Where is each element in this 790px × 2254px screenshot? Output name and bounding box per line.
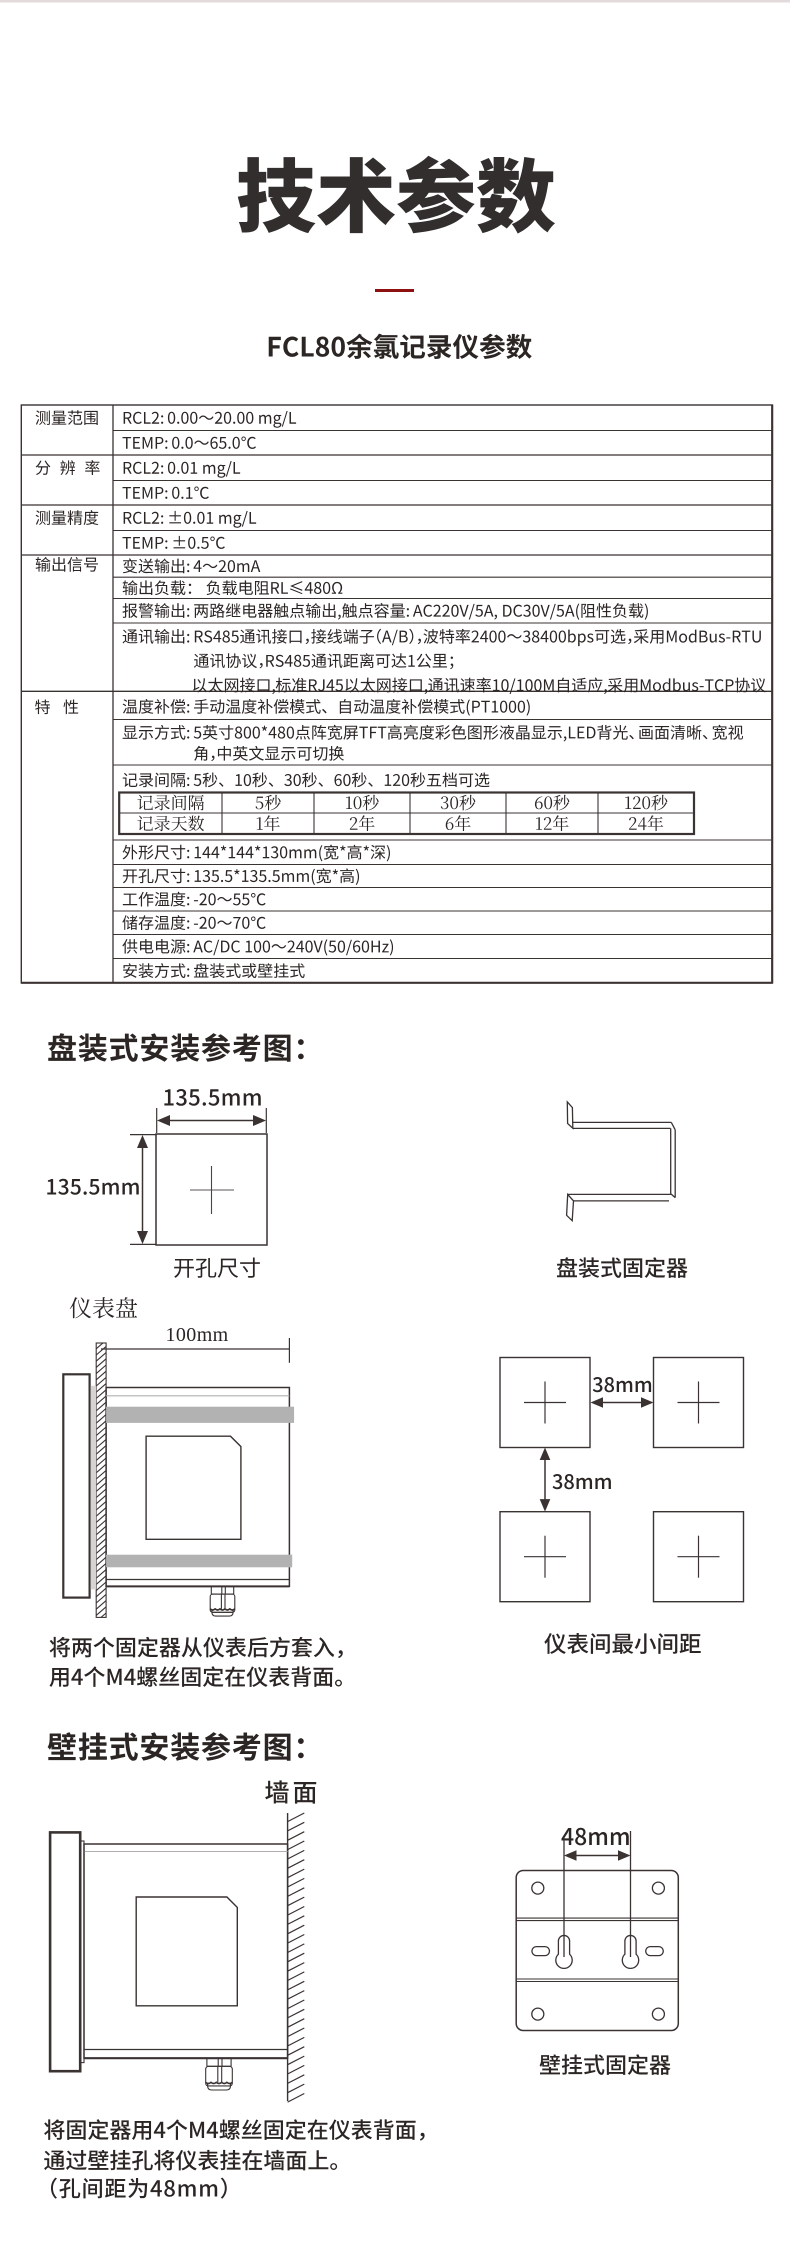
svg-text:100mm: 100mm — [166, 1324, 229, 1346]
